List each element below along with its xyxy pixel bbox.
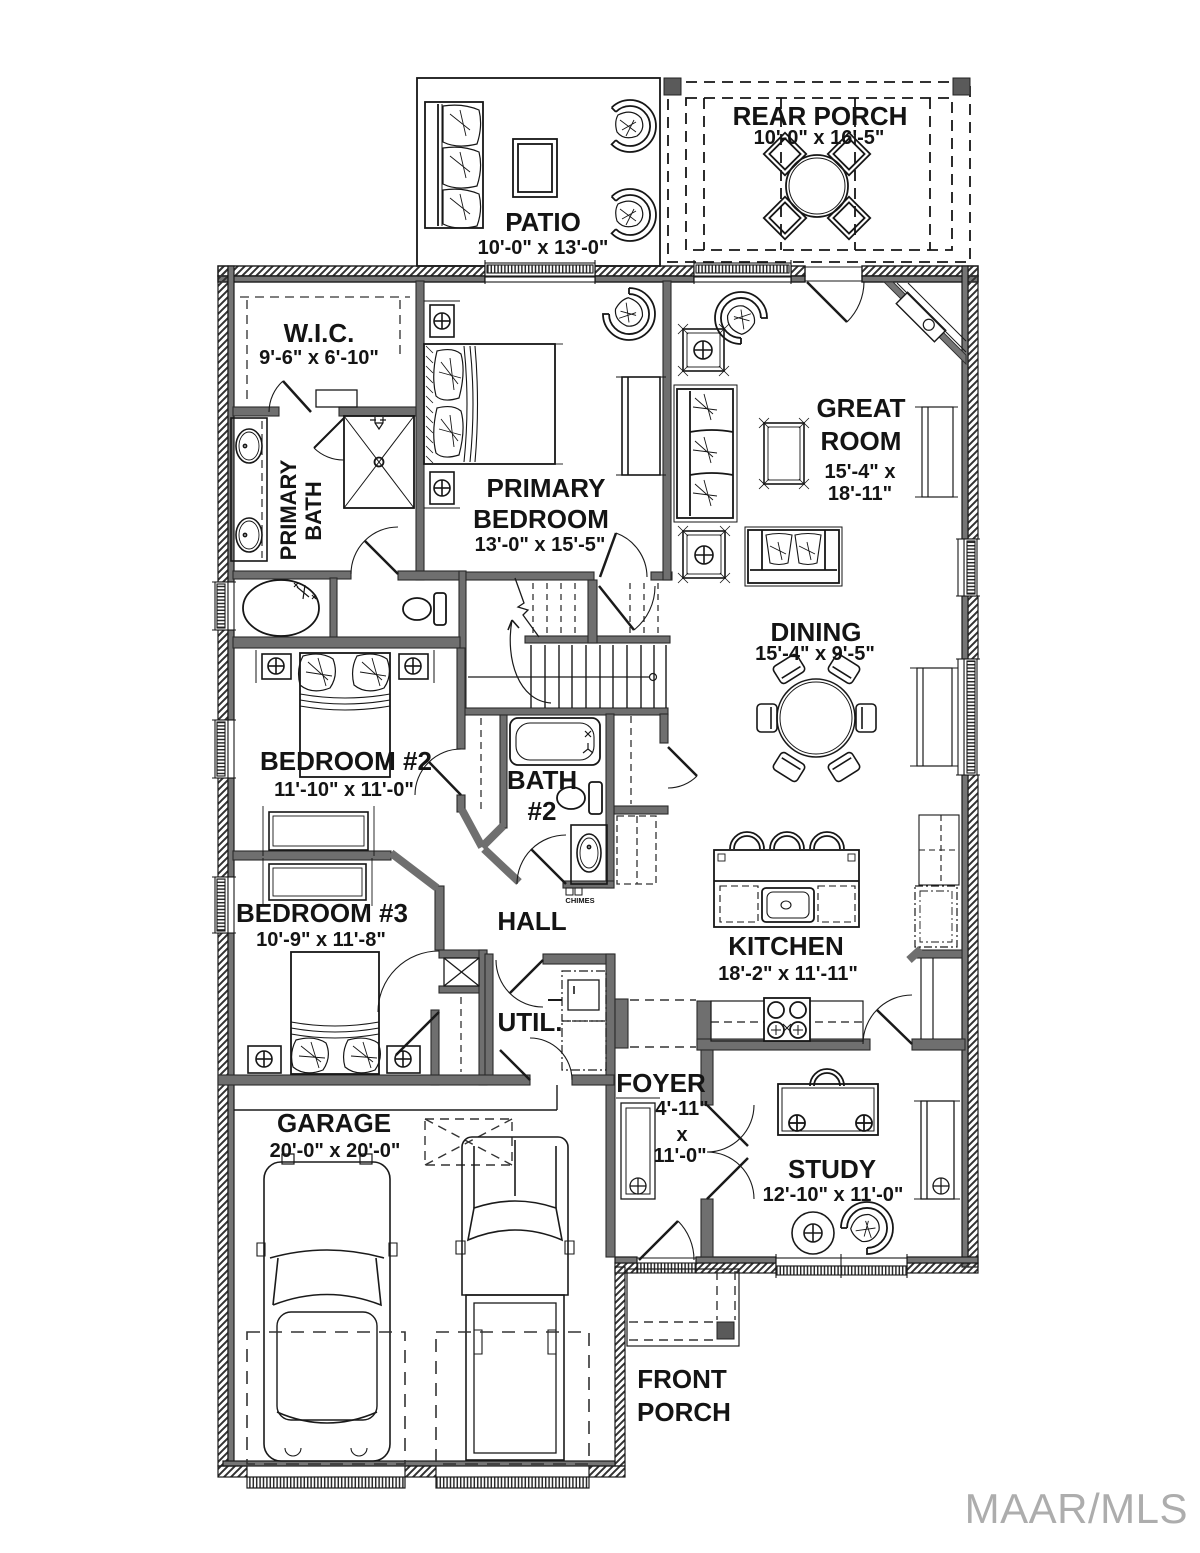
- svg-text:FRONT: FRONT: [637, 1364, 727, 1394]
- svg-text:18'-2" x 11'-11": 18'-2" x 11'-11": [718, 963, 858, 985]
- svg-text:9'-6" x 6'-10": 9'-6" x 6'-10": [259, 347, 379, 369]
- svg-text:UTIL.: UTIL.: [498, 1007, 563, 1037]
- svg-text:15'-4" x: 15'-4" x: [825, 461, 896, 483]
- svg-text:PATIO: PATIO: [505, 207, 581, 237]
- svg-text:FOYER: FOYER: [616, 1068, 706, 1098]
- svg-text:PRIMARY: PRIMARY: [487, 473, 606, 503]
- svg-text:20'-0" x 20'-0": 20'-0" x 20'-0": [270, 1140, 401, 1162]
- svg-text:13'-0" x 15'-5": 13'-0" x 15'-5": [475, 534, 606, 556]
- svg-text:MAAR/MLS: MAAR/MLS: [965, 1485, 1188, 1532]
- svg-text:10'-0" x 16'-5": 10'-0" x 16'-5": [754, 127, 885, 149]
- svg-text:CHIMES: CHIMES: [565, 896, 594, 905]
- svg-text:GREAT: GREAT: [816, 393, 905, 423]
- svg-text:#2: #2: [528, 796, 557, 826]
- svg-text:15'-4" x 9'-5": 15'-4" x 9'-5": [755, 643, 875, 665]
- svg-text:KITCHEN: KITCHEN: [728, 931, 844, 961]
- svg-text:W.I.C.: W.I.C.: [284, 318, 355, 348]
- svg-text:PRIMARY: PRIMARY: [276, 459, 301, 560]
- svg-text:x: x: [676, 1124, 687, 1146]
- svg-text:12'-10" x 11'-0": 12'-10" x 11'-0": [763, 1184, 904, 1206]
- svg-text:4'-11": 4'-11": [655, 1098, 708, 1120]
- svg-text:BEDROOM #3: BEDROOM #3: [236, 898, 408, 928]
- svg-text:BATH: BATH: [507, 765, 577, 795]
- svg-text:STUDY: STUDY: [788, 1154, 876, 1184]
- svg-text:18'-11": 18'-11": [828, 483, 892, 505]
- svg-text:BEDROOM: BEDROOM: [473, 504, 609, 534]
- svg-text:11'-10" x 11'-0": 11'-10" x 11'-0": [274, 779, 414, 801]
- svg-text:BATH: BATH: [301, 481, 326, 540]
- svg-text:ROOM: ROOM: [821, 426, 902, 456]
- svg-text:11'-0": 11'-0": [653, 1145, 706, 1167]
- svg-text:BEDROOM #2: BEDROOM #2: [260, 746, 432, 776]
- svg-text:HALL: HALL: [497, 906, 566, 936]
- svg-text:GARAGE: GARAGE: [277, 1108, 391, 1138]
- svg-text:PORCH: PORCH: [637, 1397, 731, 1427]
- svg-text:10'-9" x 11'-8": 10'-9" x 11'-8": [256, 929, 386, 951]
- svg-text:10'-0" x 13'-0": 10'-0" x 13'-0": [478, 237, 609, 259]
